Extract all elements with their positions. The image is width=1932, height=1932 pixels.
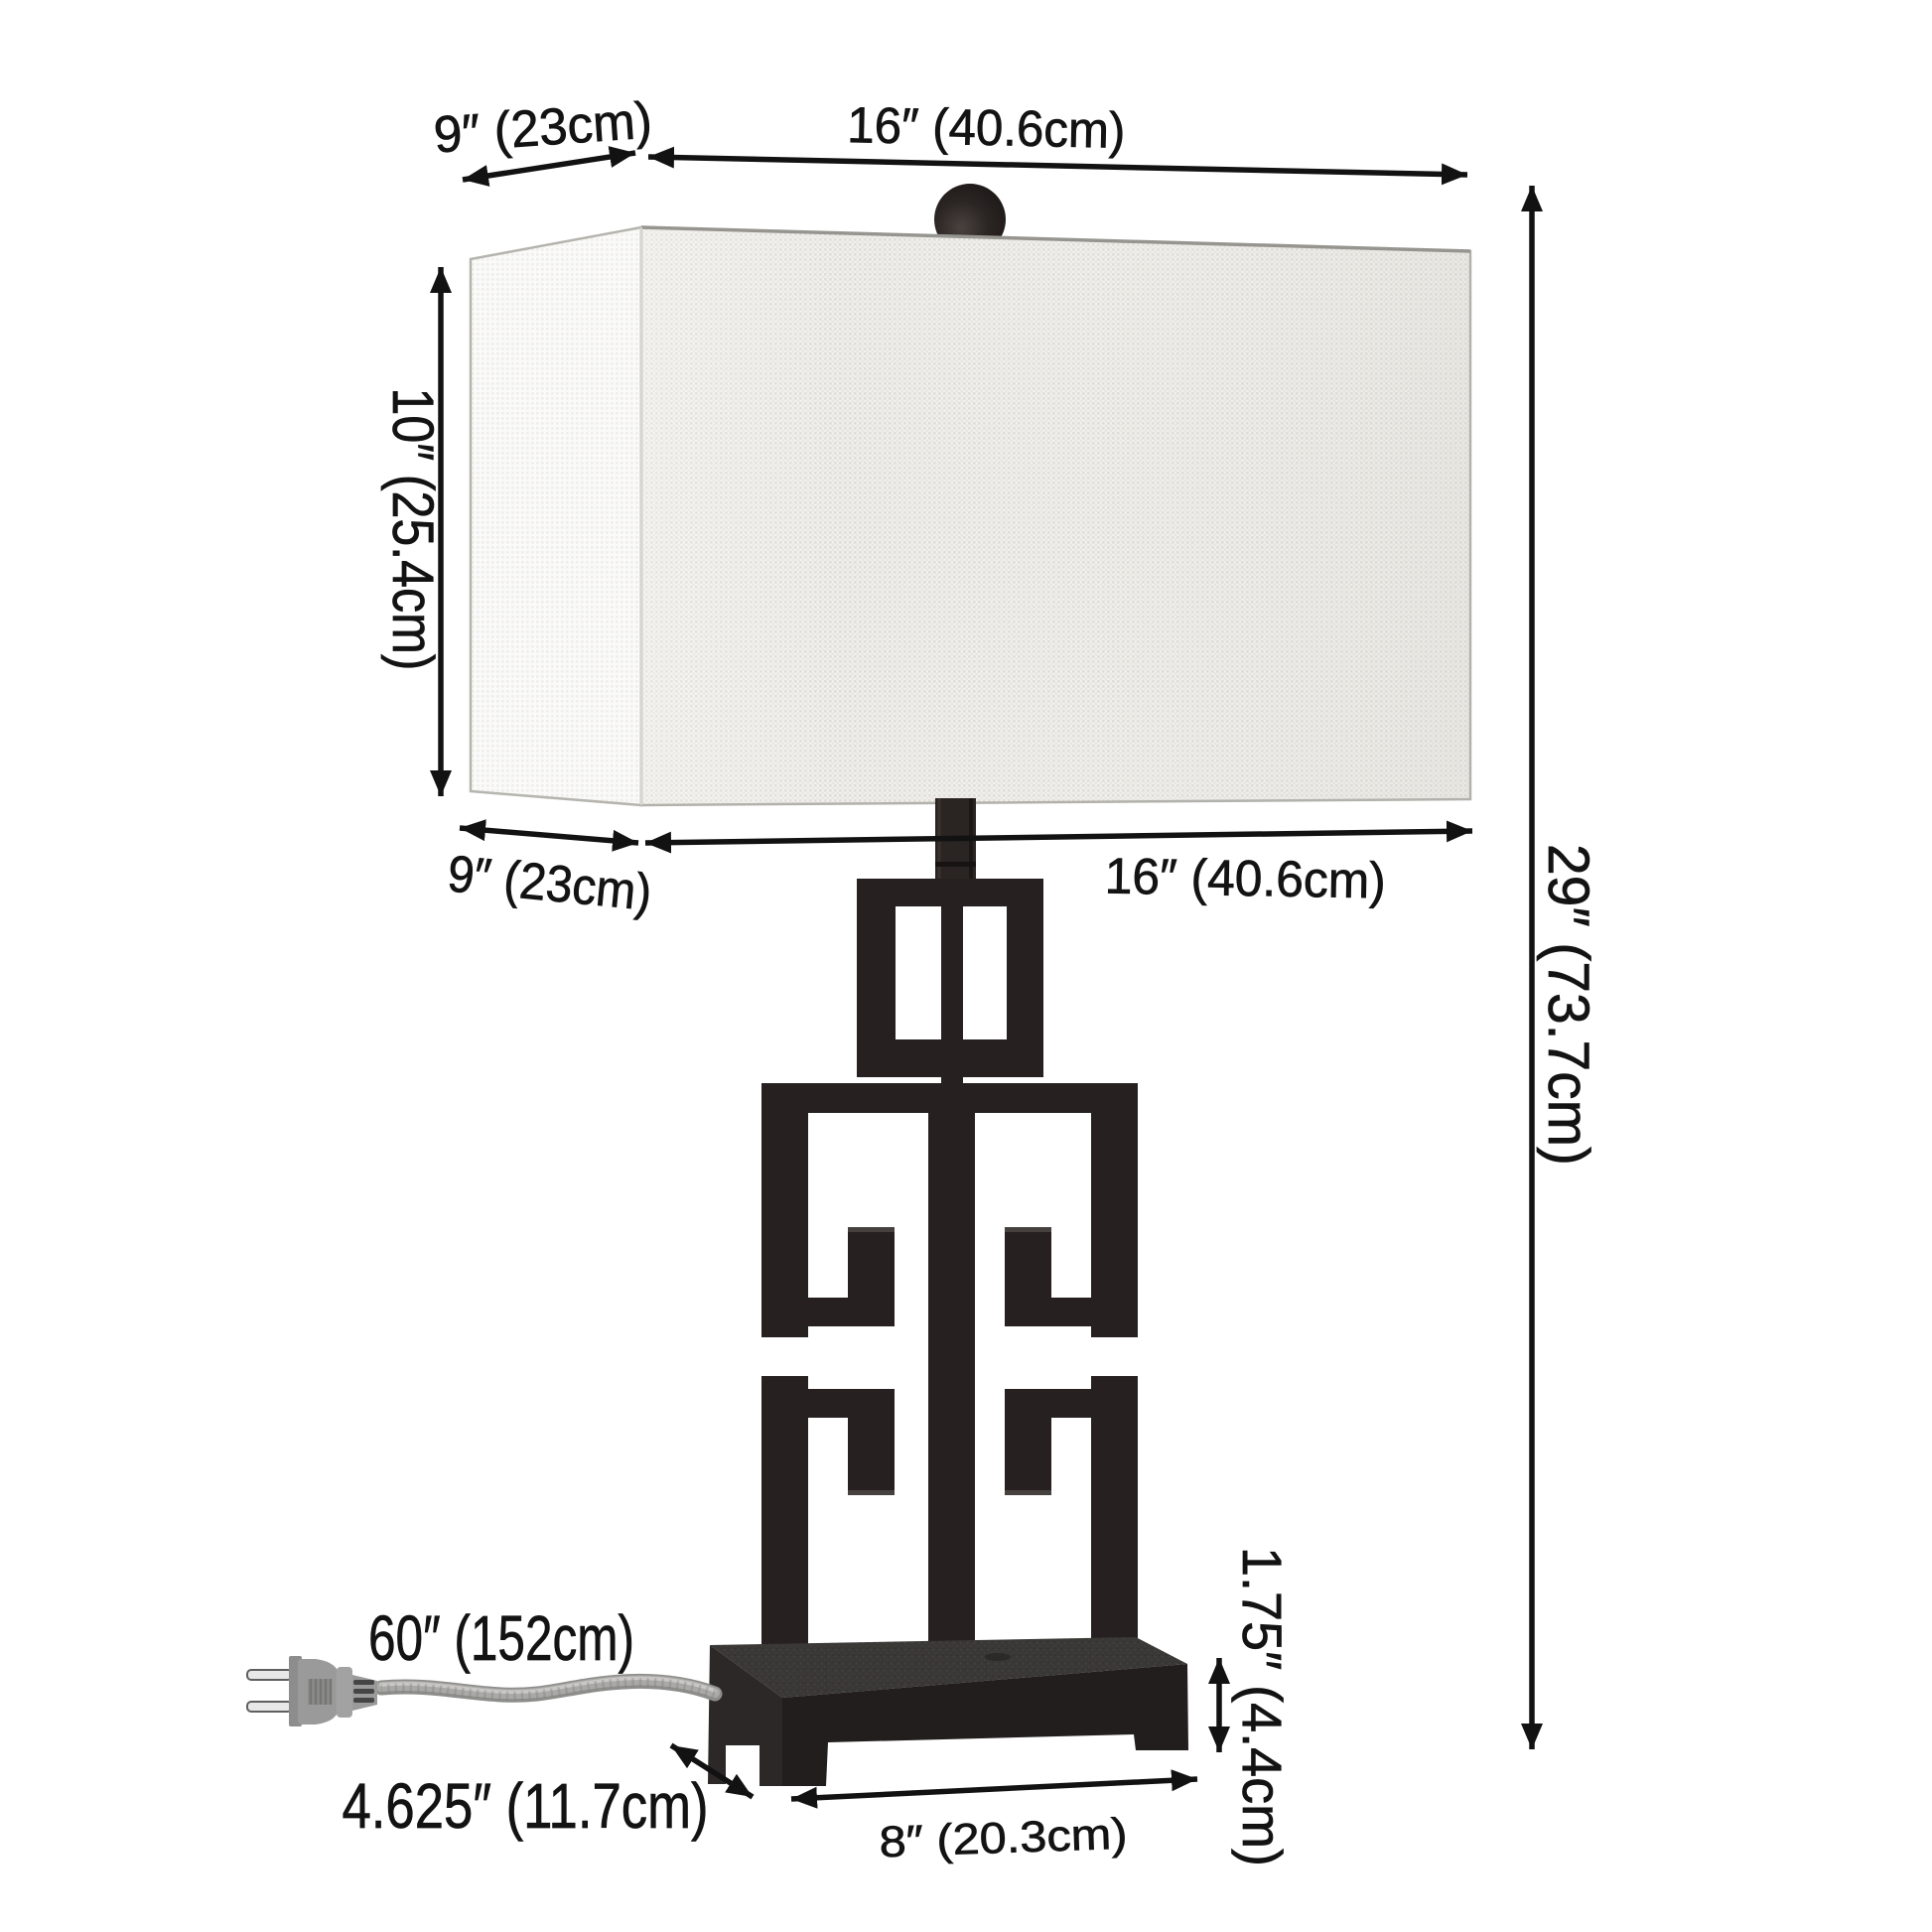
svg-text:4.625″ (11.7cm): 4.625″ (11.7cm) <box>343 1770 709 1842</box>
svg-text:16″ (40.6cm): 16″ (40.6cm) <box>1104 848 1386 909</box>
svg-text:1.75″ (4.4cm): 1.75″ (4.4cm) <box>1231 1547 1294 1866</box>
svg-text:10″ (25.4cm): 10″ (25.4cm) <box>380 388 445 671</box>
svg-text:60″ (152cm): 60″ (152cm) <box>368 1602 634 1674</box>
svg-text:8″ (20.3cm): 8″ (20.3cm) <box>879 1810 1129 1867</box>
svg-text:16″ (40.6cm): 16″ (40.6cm) <box>847 96 1126 159</box>
svg-text:29″ (73.7cm): 29″ (73.7cm) <box>1536 844 1600 1166</box>
